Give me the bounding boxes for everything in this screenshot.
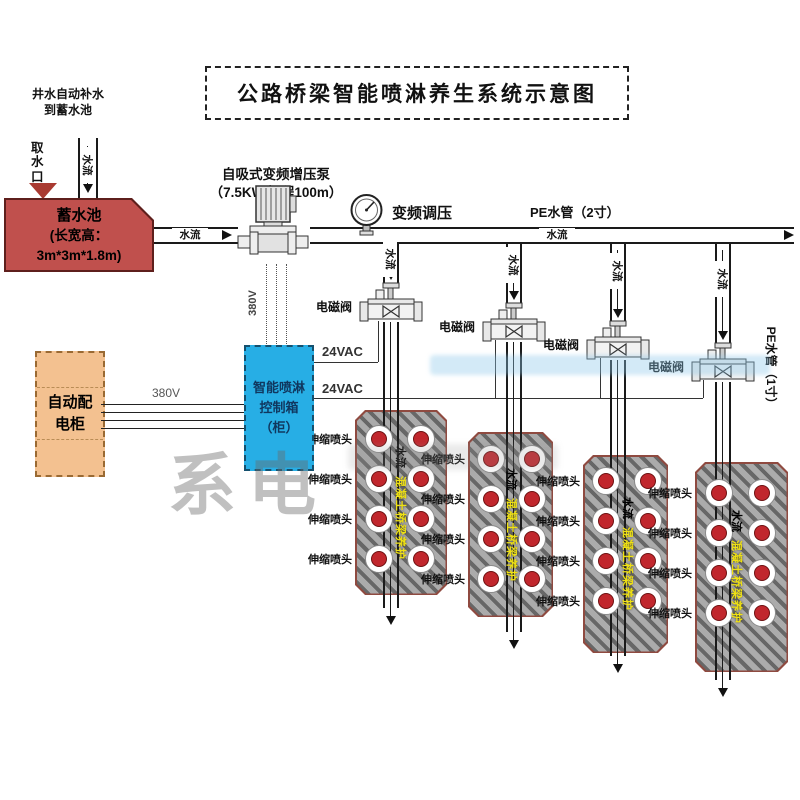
spray-head-nozzle xyxy=(598,513,614,529)
branch-4-flow-label: 水流 xyxy=(715,261,729,297)
spray-head-nozzle xyxy=(483,531,499,547)
spray-head-nozzle xyxy=(711,605,727,621)
cabinet-divider xyxy=(37,387,103,388)
spray-block-2-text: 水流混凝土桥梁养护 xyxy=(504,445,520,605)
spray-head-nozzle xyxy=(483,451,499,467)
spray-head-nozzle xyxy=(371,431,387,447)
spray-block-1-text: 水流混凝土桥梁养护 xyxy=(393,423,409,583)
spray-head-nozzle xyxy=(524,491,540,507)
spray-head-nozzle xyxy=(483,491,499,507)
spray-head-nozzle xyxy=(413,551,429,567)
branch-1-down-flow-line xyxy=(390,322,391,616)
spray-head-label: 伸缩喷头 xyxy=(640,565,692,581)
spray-head-label: 伸缩喷头 xyxy=(528,473,580,489)
pump-inlet-arrow xyxy=(222,230,232,240)
spray-head-nozzle xyxy=(524,531,540,547)
solenoid-valve-icon xyxy=(583,320,651,360)
24vac-wire-1-riser xyxy=(378,321,379,362)
spray-head-label: 伸缩喷头 xyxy=(640,485,692,501)
reservoir-out-flow-label: 水流 xyxy=(172,228,208,242)
spray-head-nozzle xyxy=(371,511,387,527)
control-box-line3: （柜） xyxy=(259,418,298,438)
branch-2-outlet-arrow xyxy=(509,640,519,649)
pump-380v-label: 380V xyxy=(247,273,261,333)
spray-control-box: 智能喷淋 控制箱 （柜） xyxy=(244,345,314,471)
spray-head-nozzle xyxy=(371,551,387,567)
cabinet-380v-label: 380V xyxy=(152,386,180,400)
spray-head-nozzle xyxy=(754,565,770,581)
branch-3-valve-label: 电磁阀 xyxy=(523,336,579,353)
reservoir-box: 蓄水池 (长宽高： 3m*3m*1.8m) xyxy=(4,198,154,272)
cabinet-divider xyxy=(37,439,103,440)
24vac-wire-2-riser xyxy=(600,358,601,398)
branch-4-outlet-arrow xyxy=(718,688,728,697)
diagram-canvas: 公路桥梁智能喷淋养生系统示意图 井水自动补水 到蓄水池 取水口 蓄水池 (长宽高… xyxy=(0,0,800,800)
main-pipe-flow-label: 水流 xyxy=(539,228,575,242)
spray-head-nozzle xyxy=(711,525,727,541)
main-pipe-label: PE水管（2寸） xyxy=(530,202,620,221)
cabinet-line1: 自动配 xyxy=(47,392,92,415)
spray-head-label: 伸缩喷头 xyxy=(300,551,352,567)
branch-3-outlet-arrow xyxy=(613,664,623,673)
pump-label-line1: 自吸式变频增压泵 xyxy=(198,166,354,184)
control-box-line2: 控制箱 xyxy=(259,398,298,418)
spray-block-3-text: 水流混凝土桥梁养护 xyxy=(620,474,636,634)
inlet-pipe-line xyxy=(96,138,98,198)
well-water-note-line2: 到蓄水池 xyxy=(16,102,120,118)
inlet-flow-arrow xyxy=(83,184,93,193)
block-flow-label: 水流 xyxy=(729,510,745,532)
well-water-note-line1: 井水自动补水 xyxy=(16,86,120,102)
spray-head-nozzle xyxy=(711,565,727,581)
spray-head-label: 伸缩喷头 xyxy=(300,511,352,527)
24vac-label-2: 24VAC xyxy=(322,381,363,396)
diagram-title: 公路桥梁智能喷淋养生系统示意图 xyxy=(205,66,629,120)
cabinet-380v-wire xyxy=(101,412,244,413)
pump-380v-wire xyxy=(276,264,277,344)
pump-icon xyxy=(236,184,312,266)
spray-head-nozzle xyxy=(754,525,770,541)
cabinet-line2: 电柜 xyxy=(55,414,85,437)
block-flow-label: 水流 xyxy=(504,468,520,490)
branch-2-valve-label: 电磁阀 xyxy=(419,318,475,335)
spray-head-label: 伸缩喷头 xyxy=(300,471,352,487)
girder-label: 混凝土桥梁养护 xyxy=(620,527,636,611)
reservoir-size-line2: 3m*3m*1.8m) xyxy=(37,246,122,266)
pressure-gauge-icon xyxy=(348,192,388,238)
spray-head-nozzle xyxy=(598,553,614,569)
spray-head-nozzle xyxy=(754,485,770,501)
branch-1-outlet-arrow xyxy=(386,616,396,625)
branch-3-pipe-line xyxy=(624,243,626,324)
inlet-flow-label: 水流 xyxy=(80,147,94,183)
branch-2-pipe-line xyxy=(520,243,522,306)
solenoid-valve-icon xyxy=(356,282,424,322)
cabinet-380v-wire xyxy=(101,420,244,421)
spray-head-nozzle xyxy=(413,431,429,447)
branch-4-pipe-line xyxy=(729,243,731,346)
branch-1-valve-label: 电磁阀 xyxy=(296,298,352,315)
spray-head-label: 伸缩喷头 xyxy=(413,491,465,507)
spray-head-nozzle xyxy=(524,571,540,587)
spray-head-nozzle xyxy=(371,471,387,487)
24vac-label-1: 24VAC xyxy=(322,344,363,359)
spray-head-label: 伸缩喷头 xyxy=(528,513,580,529)
reservoir-size-line1: (长宽高： xyxy=(50,226,109,246)
solenoid-valve-icon xyxy=(688,342,756,382)
spray-head-label: 伸缩喷头 xyxy=(640,525,692,541)
branch-3-flow-arrow xyxy=(613,309,623,318)
spray-head-nozzle xyxy=(754,605,770,621)
cabinet-380v-wire xyxy=(101,428,244,429)
block-flow-label: 水流 xyxy=(620,497,636,519)
main-pipe-arrow xyxy=(784,230,794,240)
pump-380v-wire xyxy=(286,264,287,344)
spray-head-label: 伸缩喷头 xyxy=(640,605,692,621)
spray-head-nozzle xyxy=(483,571,499,587)
cabinet-380v-wire xyxy=(101,404,244,405)
branch-4-flow-arrow xyxy=(718,331,728,340)
girder-label: 混凝土桥梁养护 xyxy=(504,498,520,582)
reservoir-name: 蓄水池 xyxy=(56,205,101,227)
spray-head-nozzle xyxy=(524,451,540,467)
branch-4-valve-label: 电磁阀 xyxy=(628,358,684,375)
spray-head-label: 伸缩喷头 xyxy=(528,593,580,609)
branch-2-flow-arrow xyxy=(509,291,519,300)
spray-head-nozzle xyxy=(598,473,614,489)
spray-head-nozzle xyxy=(413,511,429,527)
spray-block-4-text: 水流混凝土桥梁养护 xyxy=(729,487,745,647)
spray-head-nozzle xyxy=(711,485,727,501)
24vac-wire-2-riser xyxy=(495,340,496,398)
24vac-wire-1 xyxy=(310,362,378,363)
spray-head-label: 伸缩喷头 xyxy=(413,451,465,467)
girder-label: 混凝土桥梁养护 xyxy=(393,476,409,560)
intake-funnel-icon xyxy=(29,183,57,199)
block-flow-label: 水流 xyxy=(393,446,409,468)
girder-label: 混凝土桥梁养护 xyxy=(729,540,745,624)
well-water-note: 井水自动补水 到蓄水池 xyxy=(16,86,120,118)
control-box-line1: 智能喷淋 xyxy=(253,378,305,398)
branch-1-flow-label: 水流 xyxy=(383,241,397,277)
spray-head-label: 伸缩喷头 xyxy=(528,553,580,569)
spray-head-label: 伸缩喷头 xyxy=(413,531,465,547)
power-cabinet-box: 自动配 电柜 xyxy=(35,351,105,477)
branch-3-flow-label: 水流 xyxy=(610,253,624,289)
spray-head-label: 伸缩喷头 xyxy=(413,571,465,587)
branch-pipe-label: PE水管（1寸） xyxy=(764,312,780,424)
intake-label: 取水口 xyxy=(31,141,46,184)
vfd-label: 变频调压 xyxy=(392,202,452,223)
branch-1-pipe-line xyxy=(397,243,399,286)
pump-380v-wire xyxy=(266,264,267,344)
spray-head-nozzle xyxy=(413,471,429,487)
spray-head-nozzle xyxy=(598,593,614,609)
24vac-wire-2-riser xyxy=(703,380,704,398)
branch-2-flow-label: 水流 xyxy=(506,247,520,283)
